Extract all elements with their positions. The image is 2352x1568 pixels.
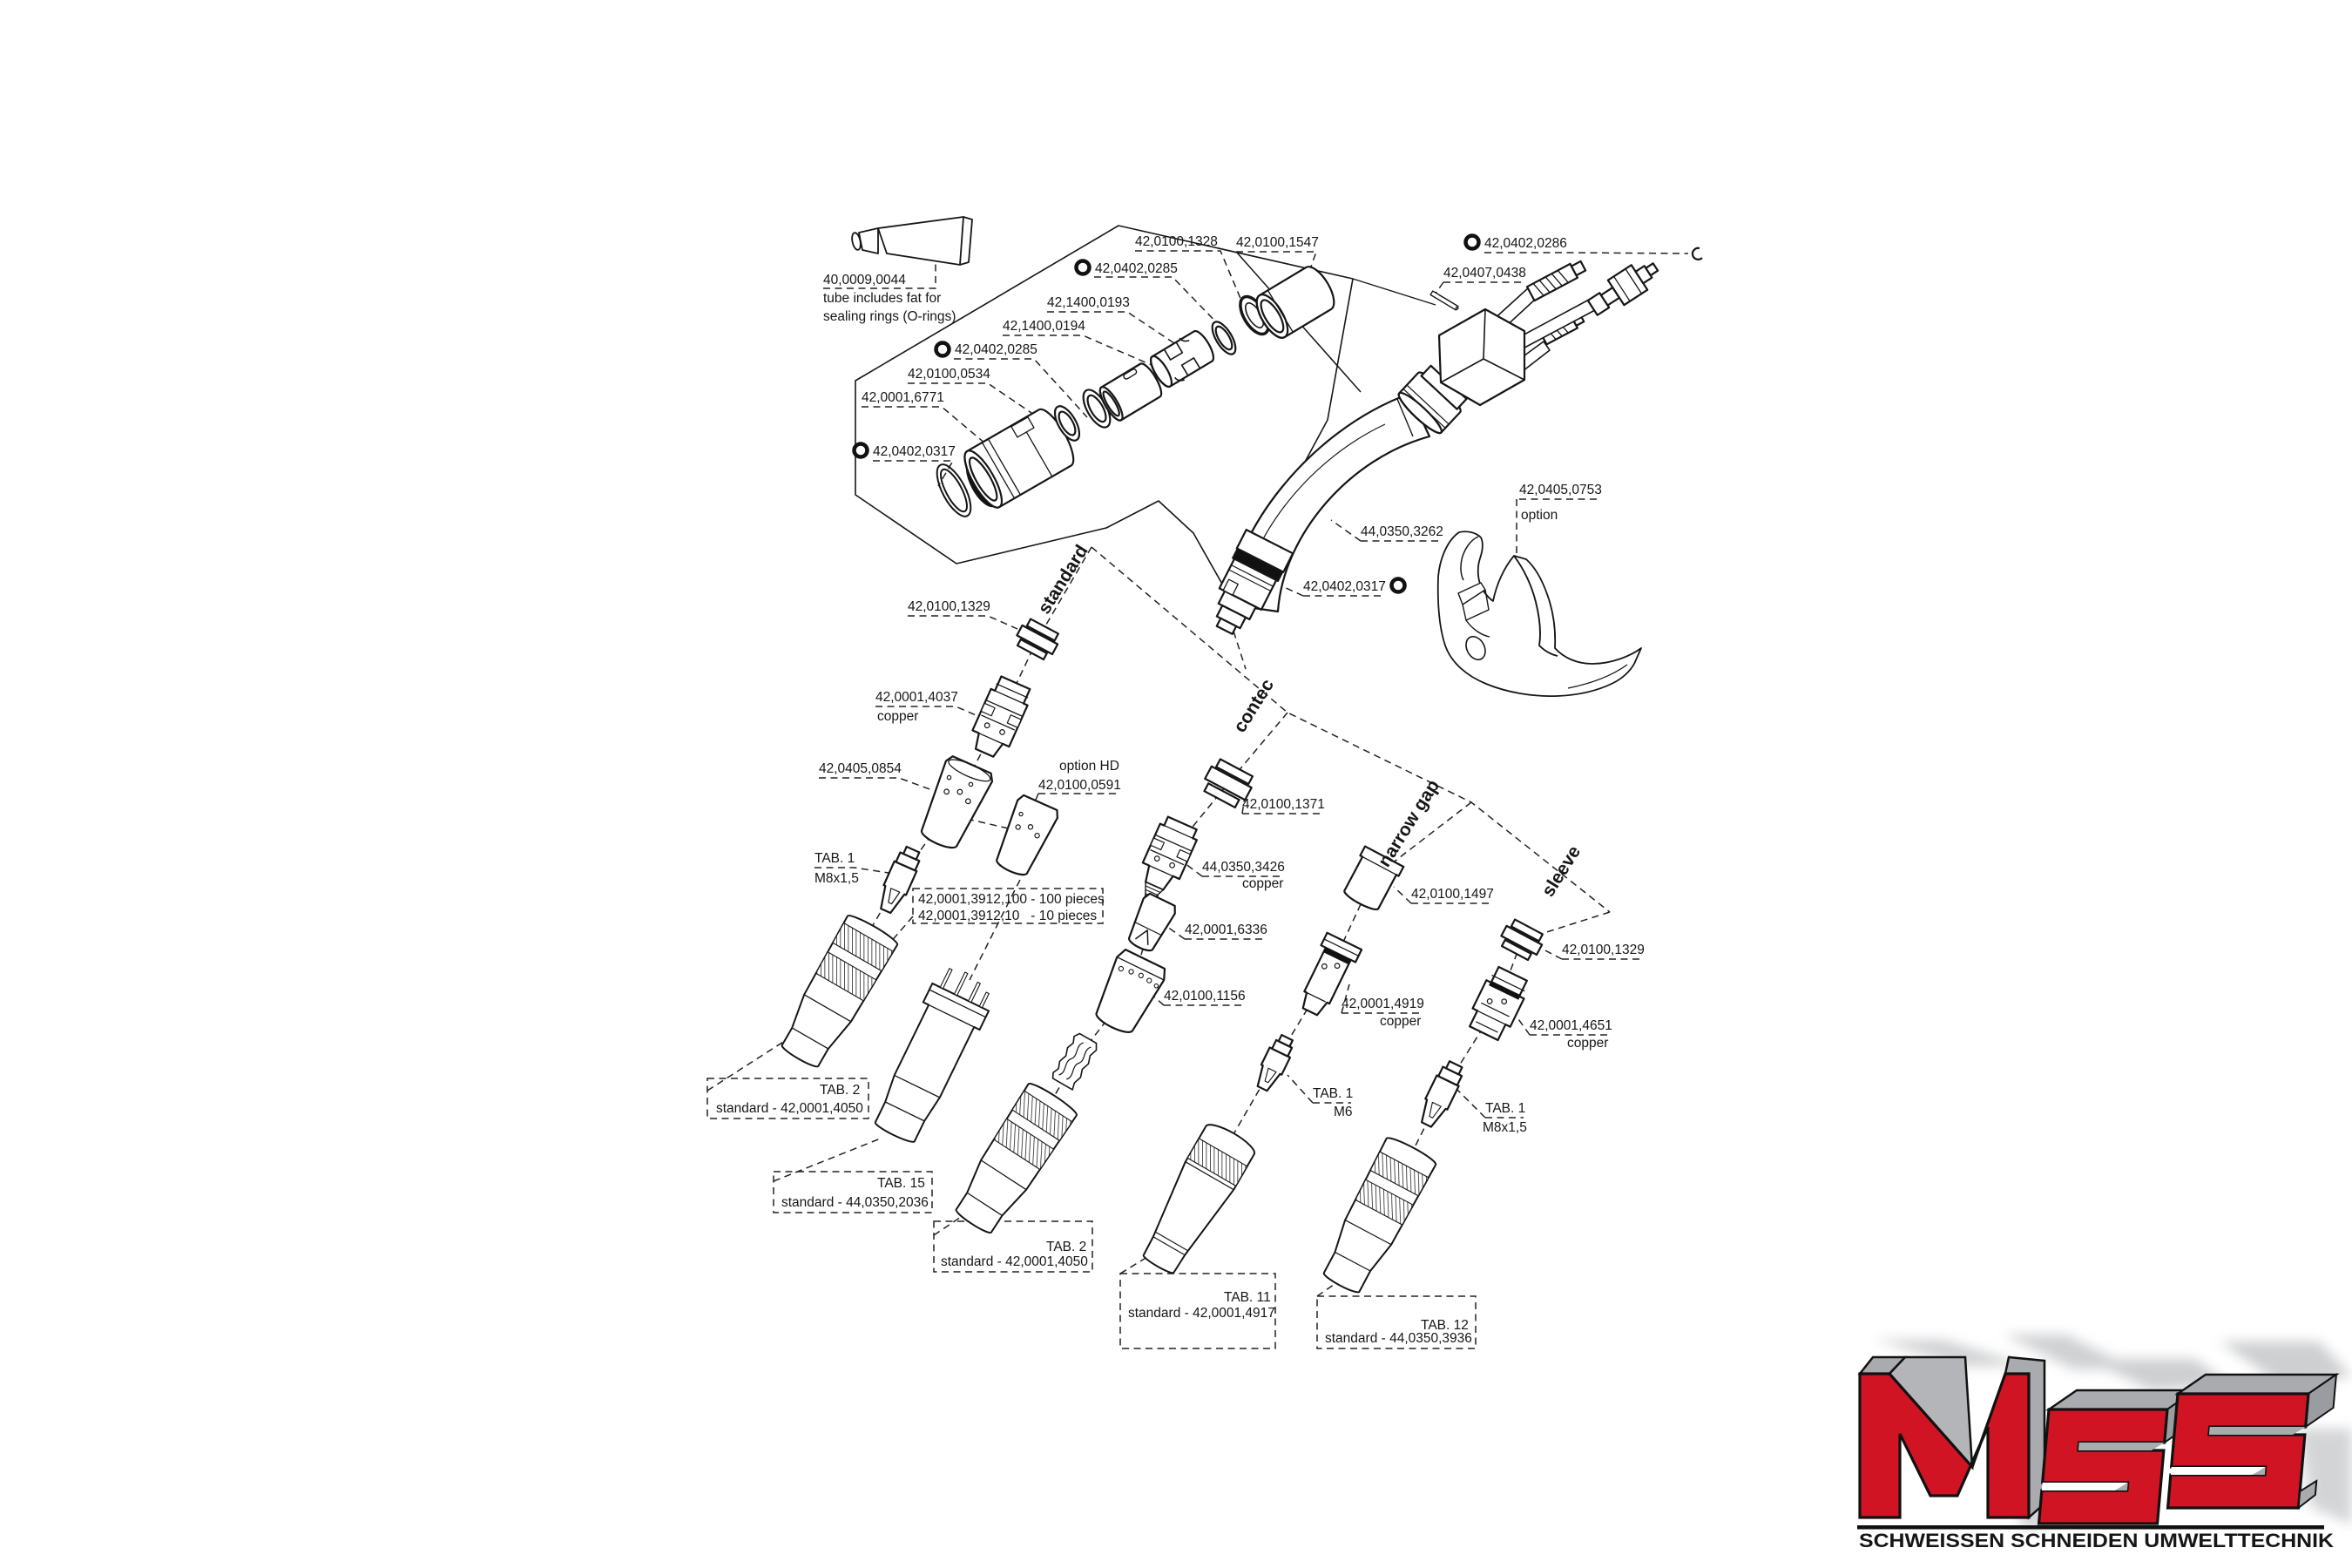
svg-text:TAB. 2: TAB. 2 — [1046, 1240, 1086, 1254]
svg-text:42,0100,1371: 42,0100,1371 — [1242, 797, 1325, 812]
svg-text:standard - 44,0350,3936: standard - 44,0350,3936 — [1325, 1331, 1472, 1346]
svg-text:42,0001,3912,100 - 100 pieces: 42,0001,3912,100 - 100 pieces — [918, 892, 1105, 907]
svg-text:TAB. 1: TAB. 1 — [1313, 1086, 1353, 1101]
svg-text:42,0100,0591: 42,0100,0591 — [1038, 778, 1121, 793]
svg-text:42,0407,0438: 42,0407,0438 — [1443, 266, 1526, 280]
svg-text:42,0001,6336: 42,0001,6336 — [1185, 923, 1267, 937]
svg-text:42,0402,0317: 42,0402,0317 — [873, 444, 956, 459]
svg-text:M8x1,5: M8x1,5 — [814, 871, 859, 886]
svg-text:42,0100,0534: 42,0100,0534 — [908, 367, 990, 382]
svg-text:42,0100,1156: 42,0100,1156 — [1164, 989, 1246, 1004]
svg-text:42,0402,0285: 42,0402,0285 — [955, 342, 1037, 357]
svg-text:42,0001,4037: 42,0001,4037 — [875, 690, 958, 705]
svg-text:TAB. 1: TAB. 1 — [814, 851, 855, 866]
svg-text:TAB. 2: TAB. 2 — [820, 1083, 860, 1098]
svg-text:42,1400,0194: 42,1400,0194 — [1003, 319, 1085, 334]
svg-text:standard - 44,0350,2036: standard - 44,0350,2036 — [781, 1195, 929, 1210]
svg-text:42,0001,3912,10 - 10 pieces: 42,0001,3912,10 - 10 pieces — [918, 909, 1097, 923]
svg-text:42,0001,4651: 42,0001,4651 — [1530, 1018, 1612, 1033]
svg-text:option HD: option HD — [1059, 759, 1119, 774]
svg-text:copper: copper — [877, 709, 918, 724]
svg-text:42,0100,1329: 42,0100,1329 — [1562, 943, 1645, 957]
svg-text:42,0402,0317: 42,0402,0317 — [1303, 579, 1386, 594]
svg-text:standard - 42,0001,4050: standard - 42,0001,4050 — [941, 1254, 1088, 1269]
svg-text:copper: copper — [1380, 1014, 1421, 1029]
svg-text:42,0001,6771: 42,0001,6771 — [862, 390, 944, 405]
svg-text:option: option — [1521, 508, 1558, 523]
svg-text:40,0009,0044: 40,0009,0044 — [823, 273, 906, 287]
svg-text:42,0100,1328: 42,0100,1328 — [1135, 234, 1218, 249]
svg-text:SCHWEISSEN SCHNEIDEN UMWELTTEC: SCHWEISSEN SCHNEIDEN UMWELTTECHNIK — [1859, 1530, 2334, 1551]
svg-text:M6: M6 — [1334, 1105, 1353, 1119]
svg-text:copper: copper — [1242, 876, 1283, 891]
svg-text:TAB. 11: TAB. 11 — [1224, 1290, 1271, 1305]
svg-text:44,0350,3426: 44,0350,3426 — [1202, 860, 1285, 875]
svg-text:standard - 42,0001,4917: standard - 42,0001,4917 — [1128, 1306, 1275, 1321]
svg-text:42,0405,0854: 42,0405,0854 — [819, 761, 902, 776]
svg-text:TAB. 1: TAB. 1 — [1485, 1101, 1525, 1116]
svg-text:42,0100,1329: 42,0100,1329 — [908, 599, 990, 614]
svg-text:42,0100,1547: 42,0100,1547 — [1236, 235, 1319, 250]
svg-text:standard - 42,0001,4050: standard - 42,0001,4050 — [716, 1101, 863, 1116]
svg-text:44,0350,3262: 44,0350,3262 — [1361, 524, 1443, 539]
svg-text:42,0100,1497: 42,0100,1497 — [1411, 887, 1494, 902]
svg-text:42,0405,0753: 42,0405,0753 — [1519, 483, 1602, 497]
svg-text:42,1400,0193: 42,1400,0193 — [1047, 295, 1130, 310]
svg-text:42,0402,0285: 42,0402,0285 — [1095, 261, 1178, 276]
svg-text:sealing rings (O-rings): sealing rings (O-rings) — [823, 309, 956, 324]
svg-text:copper: copper — [1567, 1036, 1608, 1051]
svg-text:TAB. 15: TAB. 15 — [877, 1176, 925, 1191]
svg-text:42,0402,0286: 42,0402,0286 — [1484, 236, 1567, 251]
svg-text:tube includes fat for: tube includes fat for — [823, 291, 941, 306]
svg-text:42,0001,4919: 42,0001,4919 — [1342, 997, 1424, 1011]
svg-text:M8x1,5: M8x1,5 — [1483, 1120, 1527, 1135]
